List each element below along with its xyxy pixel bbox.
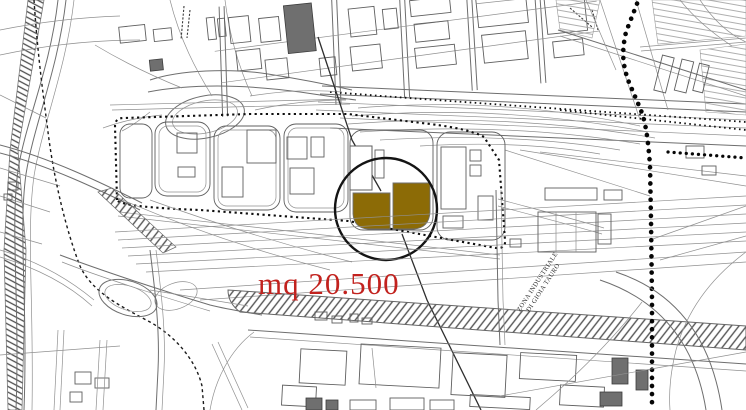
building-in-circle [350,146,372,190]
zone-label-line1: ZONA INDUSTRIALE [516,251,560,313]
bottom-left-interchange [60,250,262,410]
highlighted-parcel-right [393,183,430,229]
zone-label: ZONA INDUSTRIALE DI GIOIA TAURO [516,251,566,318]
highlighted-parcel-left [353,193,390,229]
map-canvas: mq 20.500 ZONA INDUSTRIALE DI GIOIA TAUR… [0,0,746,410]
cadastral-map-screenshot: mq 20.500 ZONA INDUSTRIALE DI GIOIA TAUR… [0,0,746,410]
dark-building [283,3,316,54]
top-right-fields [556,0,746,260]
area-label: mq 20.500 [258,266,400,301]
